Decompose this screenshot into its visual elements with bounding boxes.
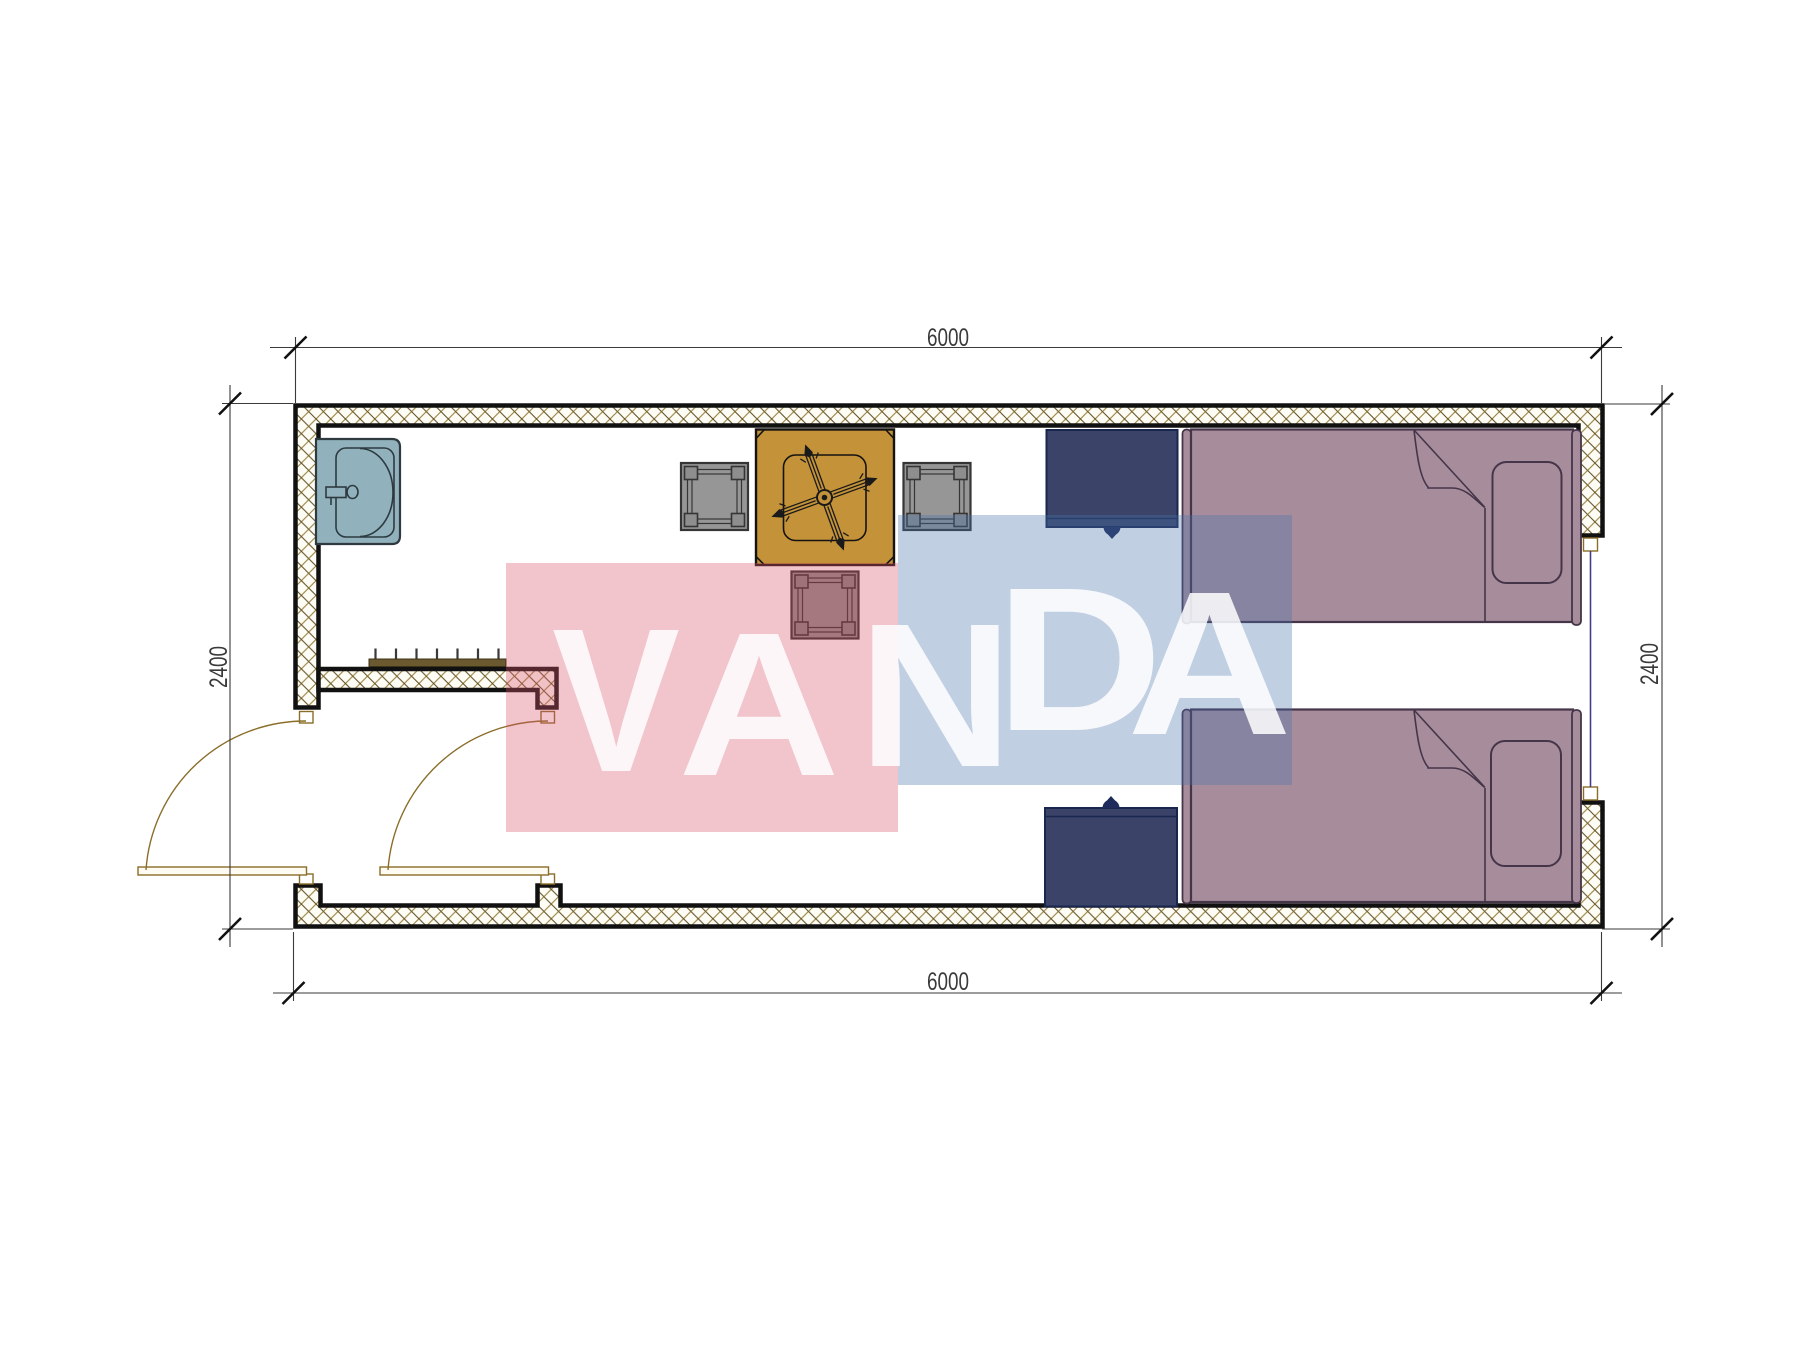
svg-text:2400: 2400 xyxy=(205,646,233,688)
svg-text:6000: 6000 xyxy=(927,968,969,996)
svg-text:6000: 6000 xyxy=(927,324,969,352)
svg-text:A: A xyxy=(678,590,840,819)
svg-text:A: A xyxy=(1127,549,1292,778)
svg-text:V: V xyxy=(552,586,680,815)
svg-text:2400: 2400 xyxy=(1636,643,1664,685)
svg-text:N: N xyxy=(858,581,1013,810)
